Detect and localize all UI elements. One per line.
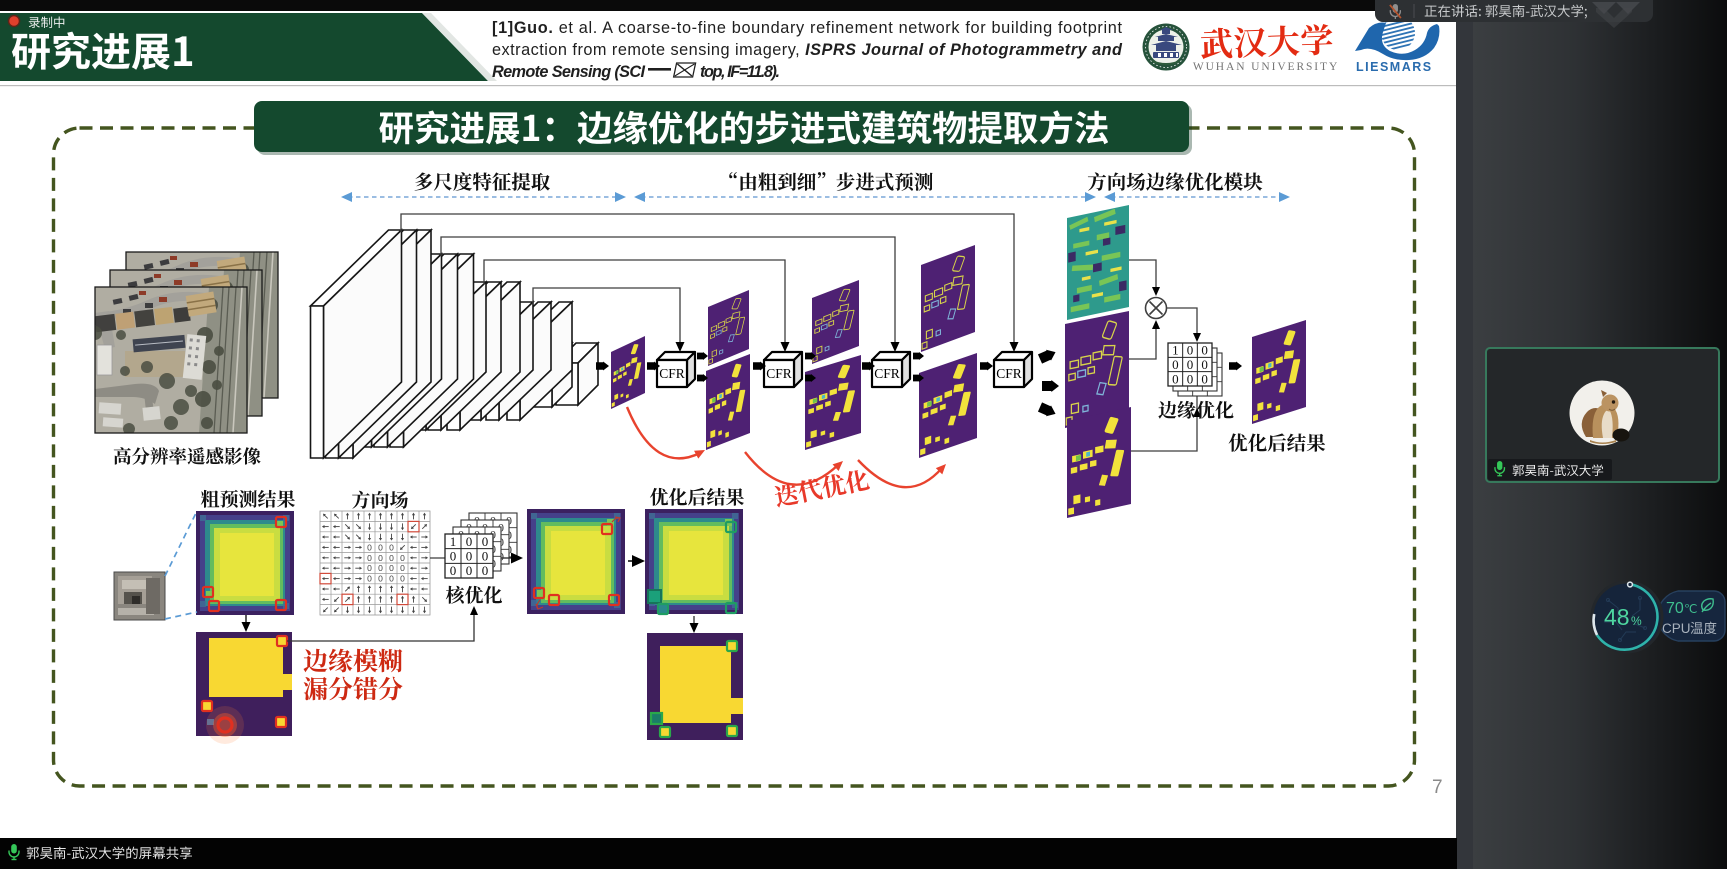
- svg-text:0: 0: [1187, 343, 1194, 358]
- svg-text:0: 0: [378, 542, 383, 552]
- svg-text:0: 0: [400, 574, 405, 584]
- svg-text:0: 0: [378, 563, 383, 573]
- svg-text:CFR: CFR: [659, 366, 685, 381]
- svg-text:0: 0: [367, 542, 372, 552]
- svg-text:0: 0: [1201, 371, 1208, 386]
- svg-text:LIESMARS: LIESMARS: [1356, 60, 1433, 74]
- svg-text:0: 0: [389, 574, 394, 584]
- svg-text:0: 0: [1172, 357, 1179, 372]
- svg-text:0: 0: [389, 553, 394, 563]
- svg-text:℃: ℃: [1684, 602, 1697, 616]
- svg-text:0: 0: [378, 553, 383, 563]
- svg-text:0: 0: [1187, 357, 1194, 372]
- svg-text:7: 7: [1432, 777, 1443, 798]
- svg-text:0: 0: [450, 549, 457, 564]
- svg-text:0: 0: [1201, 357, 1208, 372]
- svg-text:0: 0: [367, 563, 372, 573]
- svg-text:0: 0: [378, 574, 383, 584]
- svg-text:0: 0: [400, 553, 405, 563]
- svg-text:0: 0: [466, 563, 473, 578]
- svg-text:0: 0: [482, 549, 489, 564]
- svg-text:0: 0: [482, 563, 489, 578]
- svg-text:0: 0: [466, 534, 473, 549]
- svg-text:0: 0: [482, 534, 489, 549]
- svg-text:0: 0: [450, 563, 457, 578]
- svg-text:WUHAN UNIVERSITY: WUHAN UNIVERSITY: [1193, 61, 1339, 73]
- svg-text:0: 0: [1187, 371, 1194, 386]
- svg-text:CFR: CFR: [874, 366, 900, 381]
- svg-text:48: 48: [1604, 604, 1630, 630]
- svg-text:Remote Sensing (SCI: Remote Sensing (SCI: [492, 63, 645, 81]
- svg-text:CPU: CPU: [1662, 621, 1691, 636]
- svg-text:0: 0: [400, 563, 405, 573]
- svg-text:1: 1: [450, 534, 457, 549]
- svg-text:1: 1: [1172, 343, 1179, 358]
- svg-text:top, IF=11.8).: top, IF=11.8).: [700, 63, 780, 81]
- svg-text:0: 0: [1172, 371, 1179, 386]
- svg-text:0: 0: [466, 549, 473, 564]
- svg-text:0: 0: [389, 542, 394, 552]
- svg-text:70: 70: [1666, 600, 1684, 617]
- svg-text:CFR: CFR: [996, 366, 1022, 381]
- svg-text:%: %: [1631, 614, 1642, 628]
- svg-text:CFR: CFR: [766, 366, 792, 381]
- svg-text:0: 0: [1201, 343, 1208, 358]
- svg-text:0: 0: [367, 574, 372, 584]
- svg-text:[1]Guo. et al. A coarse-to-fin: [1]Guo. et al. A coarse-to-fine boundary…: [492, 19, 1122, 37]
- svg-text:0: 0: [367, 553, 372, 563]
- svg-text:0: 0: [389, 563, 394, 573]
- svg-text:extraction from remote sensing: extraction from remote sensing imagery, …: [492, 41, 1123, 59]
